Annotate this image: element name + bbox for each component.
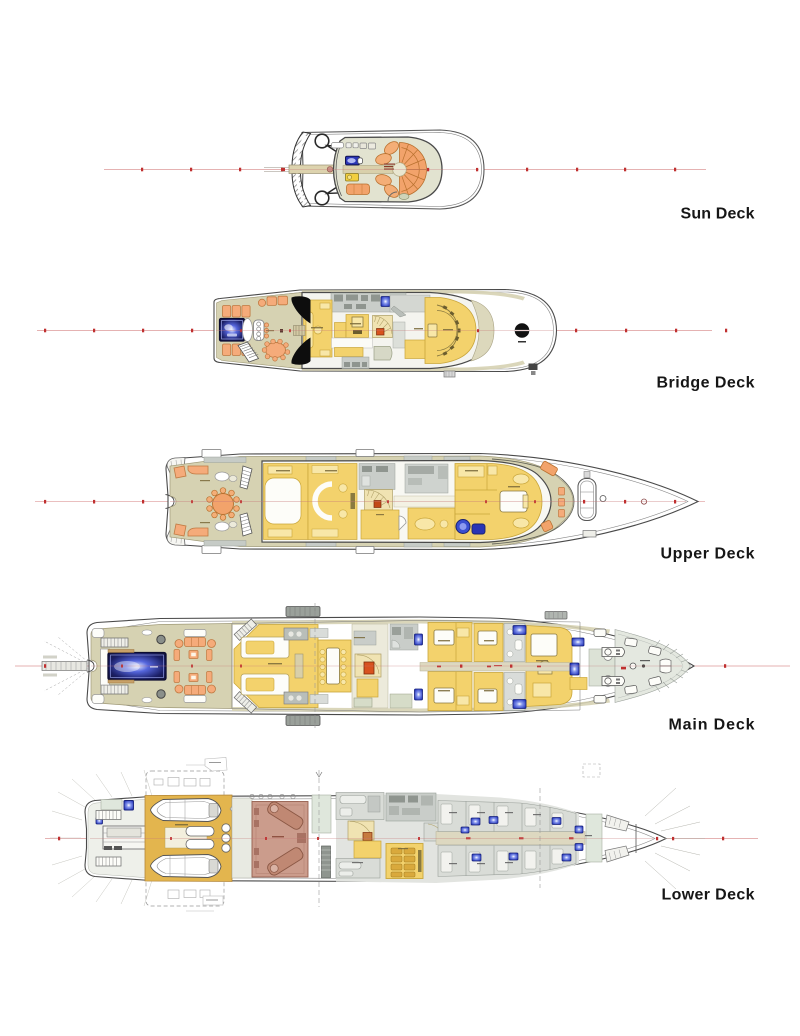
svg-text:Bridge Deck: Bridge Deck bbox=[657, 375, 755, 392]
svg-text:Upper Deck: Upper Deck bbox=[661, 545, 755, 562]
svg-text:Main Deck: Main Deck bbox=[669, 717, 755, 734]
svg-text:Sun Deck: Sun Deck bbox=[681, 206, 755, 223]
svg-text:Lower Deck: Lower Deck bbox=[662, 887, 755, 904]
